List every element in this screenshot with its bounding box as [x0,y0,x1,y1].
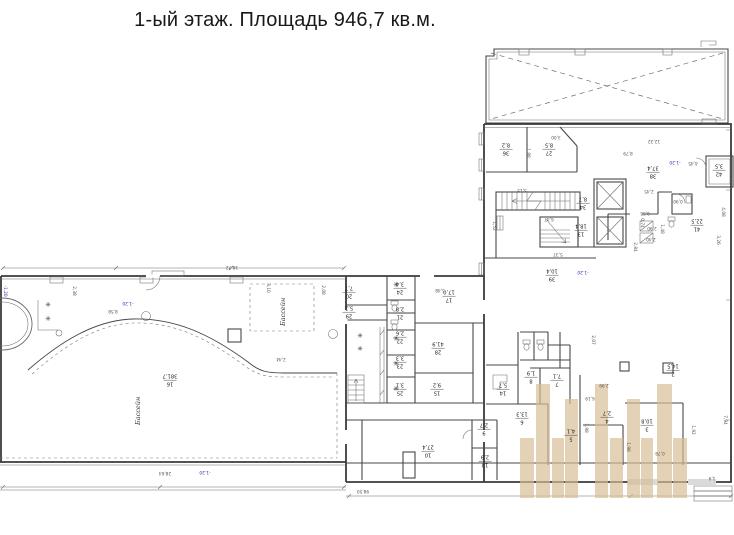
svg-text:17: 17 [446,297,453,303]
svg-text:7: 7 [555,381,558,387]
floor-plan-canvas: Бассейн Бассейн 368,2278,5348,71318,4383… [0,0,734,535]
svg-text:6: 6 [520,419,523,425]
svg-text:8,5: 8,5 [545,141,553,147]
svg-text:34: 34 [579,204,586,210]
dimension-label: 3,98 [583,423,589,433]
dimension-label: 5,48 [435,287,445,293]
svg-text:16: 16 [167,381,174,387]
dimension-label: 0,55 [640,210,650,216]
room-label: 145,7 [497,381,510,395]
svg-text:39: 39 [549,276,556,282]
svg-text:27: 27 [546,150,553,156]
dimension-label: 1,48 [659,224,665,234]
svg-text:8,2: 8,2 [502,141,510,147]
svg-text:20: 20 [346,293,353,299]
shower-symbol: ✳ [45,315,51,323]
svg-text:2,7: 2,7 [480,421,488,427]
plumbing-fixtures [391,196,691,350]
elevation-mark: -1.20 [669,159,680,165]
elevation-mark: -1.20 [2,285,8,296]
dimension-label: 98,50 [357,488,370,494]
room-label: 132,9 [479,453,492,467]
dimension-label: 2,99 [599,382,609,388]
pool-hall-label-vertical: Бассейн [134,397,142,426]
room-label: 613,3 [516,410,529,424]
dimension-label: 8,79 [623,150,633,156]
svg-text:2,9: 2,9 [481,453,489,459]
room-label: 368,2 [500,141,513,155]
dimension-label: 6,47 [544,216,554,222]
svg-text:5,2: 5,2 [345,304,353,310]
room-label: 1318,4 [575,222,588,236]
svg-text:29: 29 [346,313,353,319]
dimension-label: 3,00 [551,134,561,140]
svg-text:8,7: 8,7 [579,195,587,201]
svg-text:7,7: 7,7 [345,284,353,290]
svg-text:41,9: 41,9 [432,340,444,346]
svg-text:4,1: 4,1 [567,427,575,433]
dimension-label: 4,45 [688,160,698,166]
dimension-label: 1,88 [525,148,531,158]
floor-plan-page: 1-ый этаж. Площадь 946,7 кв.м. [0,0,734,535]
dimension-label: 6,19 [585,395,595,401]
svg-text:7,1: 7,1 [553,372,561,378]
dimension-label: 2,45 [644,188,654,194]
dimension-label: 2,44 [276,356,286,362]
dimension-label: 0,78 [655,450,665,456]
svg-text:5,7: 5,7 [499,381,507,387]
room-label: 278,5 [543,141,556,155]
dimension-label: 7,94 [722,415,728,425]
dimension-label: 2,90 [647,225,657,231]
svg-text:2,7: 2,7 [603,409,611,415]
dimension-label: 1,52 [491,221,497,231]
dimension-label: 1,92 [690,425,696,435]
room-label: 3837,4 [647,164,660,178]
svg-text:3: 3 [645,426,648,432]
dimension-label: 12,32 [648,138,661,144]
room-label: 16381,7 [163,372,178,386]
dimension-label: 2,08 [320,285,326,295]
room-label: 310,8 [641,417,654,431]
spa-circle [0,298,32,350]
svg-text:36: 36 [503,150,510,156]
terrace-dashed-x [491,53,723,119]
dimension-label: 1,9 [708,475,715,481]
pool-curved-edge [28,319,337,373]
room-label: 348,7 [577,195,590,209]
svg-text:5: 5 [569,436,572,442]
svg-text:1,9: 1,9 [527,369,535,375]
svg-text:10: 10 [425,452,432,458]
shower-symbol: ✳ [357,345,363,353]
svg-text:18,4: 18,4 [575,222,587,228]
svg-text:9,2: 9,2 [433,381,441,387]
room-label: 77,1 [551,372,564,386]
dimension-label: 0,74 [639,218,645,228]
outer-walls [0,124,731,482]
elevation-mark: -1.20 [199,469,210,475]
svg-text:37,4: 37,4 [647,164,659,170]
dimension-label: 5,37 [553,251,563,257]
svg-text:15: 15 [434,390,441,396]
small-staircase [348,375,364,403]
terrace-outline [486,41,728,123]
room-label: 3910,4 [546,267,559,281]
svg-text:13: 13 [482,462,489,468]
dimension-label: 1,98 [625,442,631,452]
svg-text:28: 28 [435,349,442,355]
radiators [479,133,503,275]
svg-text:8: 8 [529,378,532,384]
dimension-label: 2,40 [646,236,656,242]
svg-text:41: 41 [694,226,701,232]
highlight-strips [520,384,687,498]
middle-section-walls [346,276,497,480]
door-openings [146,158,706,444]
svg-text:22,5: 22,5 [691,217,703,223]
room-label: 1027,4 [422,443,435,457]
room-label: 4122,5 [691,217,704,231]
svg-text:42: 42 [716,171,723,177]
svg-text:21: 21 [397,314,404,320]
svg-text:2: 2 [671,371,674,377]
room-label: 2841,9 [432,340,445,354]
dimension-label: 0,90 [673,198,683,204]
dimension-label: 38,72 [226,264,239,270]
shower-symbol: ✳ [393,385,399,393]
svg-text:27,4: 27,4 [422,443,434,449]
dimension-label: 2,38 [71,286,77,296]
dimension-label: 8,58 [108,308,118,314]
svg-text:38: 38 [650,173,657,179]
dimension-label: 2,07 [590,335,596,345]
svg-text:3,5: 3,5 [715,162,723,168]
dimension-label: 4,08 [720,207,726,217]
pool-label-vertical: Бассейн [279,298,287,327]
dimension-label: 3,10 [265,283,271,293]
svg-text:2,8: 2,8 [396,305,404,311]
elevation-mark: -1.20 [122,300,133,306]
column [228,329,241,342]
shower-symbol: ✳ [45,301,51,309]
shower-symbol: ✳ [393,335,399,343]
svg-text:10,4: 10,4 [546,267,558,273]
shower-symbol: ✳ [357,332,363,340]
svg-text:24: 24 [396,289,403,295]
elevation-mark: -1.20 [577,269,588,275]
svg-text:14: 14 [499,390,506,396]
svg-text:9: 9 [482,430,485,436]
shower-symbol: ✳ [393,281,399,289]
pool-hall [0,119,716,458]
dimension-label: 5,15 [517,187,527,193]
svg-text:14,5: 14,5 [667,362,679,368]
svg-text:10,8: 10,8 [641,417,653,423]
svg-text:13: 13 [578,231,585,237]
svg-text:381,7: 381,7 [163,372,178,378]
room-label: 159,2 [431,381,444,395]
svg-text:13,3: 13,3 [516,410,528,416]
dimension-label: 3,26 [715,235,721,245]
room-label: 207,7 [343,284,356,298]
room-label: 295,2 [343,304,356,318]
dimension-label: 2,84 [632,242,638,252]
dimension-label: 28,64 [159,470,172,476]
room-label: 81,9 [525,369,538,383]
room-label: 423,5 [713,162,726,176]
shower-symbol: ✳ [393,360,399,368]
